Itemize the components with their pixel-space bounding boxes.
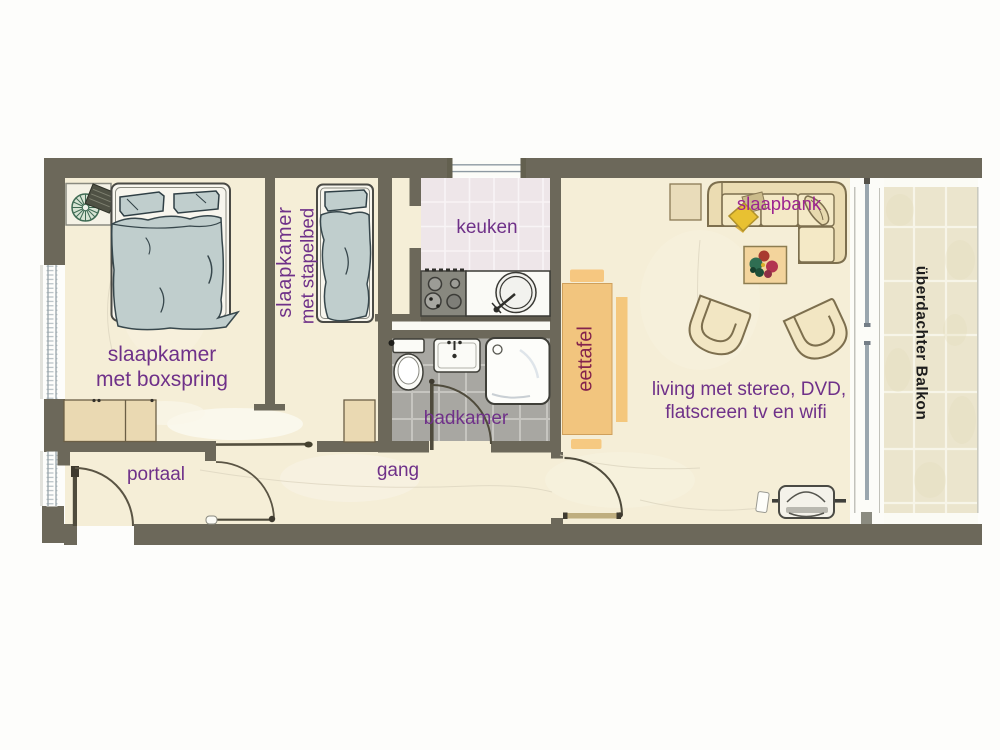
- svg-text:met stapelbed: met stapelbed: [297, 208, 318, 324]
- svg-text:slaapkamer: slaapkamer: [274, 206, 296, 317]
- svg-text:eettafel: eettafel: [575, 326, 597, 392]
- svg-text:gang: gang: [377, 460, 419, 481]
- svg-text:slaapkamer: slaapkamer: [108, 343, 217, 366]
- svg-text:badkamer: badkamer: [424, 408, 509, 429]
- svg-text:slaapbank: slaapbank: [737, 193, 822, 214]
- svg-text:living met stereo, DVD,: living met stereo, DVD,: [652, 379, 846, 400]
- svg-text:flatscreen tv en wifi: flatscreen tv en wifi: [665, 402, 827, 423]
- svg-text:portaal: portaal: [127, 464, 185, 485]
- svg-text:überdachter Balkon: überdachter Balkon: [913, 266, 930, 421]
- svg-text:met boxspring: met boxspring: [96, 368, 228, 391]
- svg-text:keuken: keuken: [456, 217, 517, 238]
